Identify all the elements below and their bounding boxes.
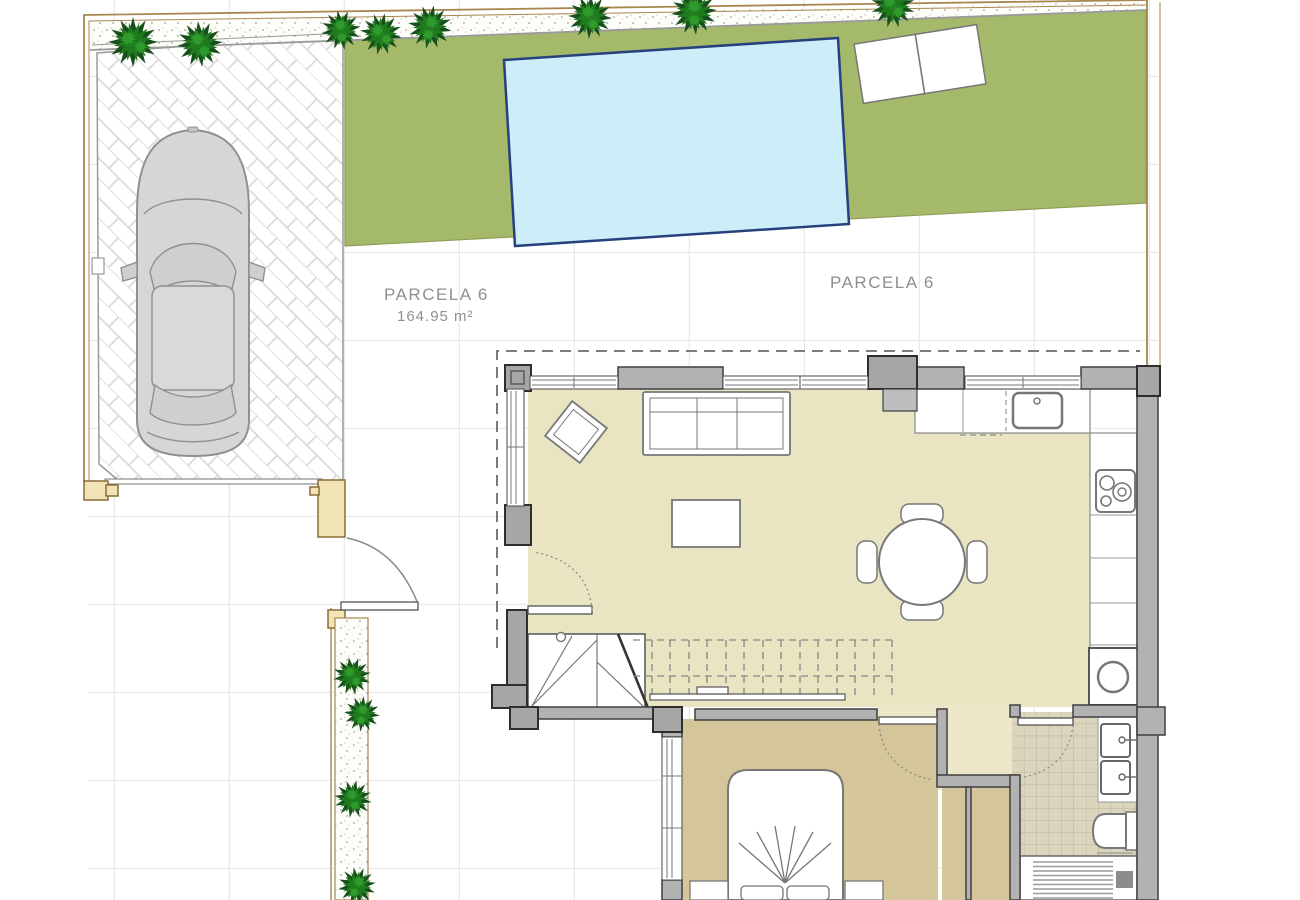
parcel-label-left: PARCELA 6 <box>384 285 489 305</box>
kitchen-counter-top <box>915 389 1090 433</box>
car-antenna <box>188 127 198 132</box>
nightstand <box>845 881 883 900</box>
stair-handrail <box>650 694 845 700</box>
parcel-area-label: 164.95 m² <box>397 308 474 325</box>
bed-cushion <box>741 886 783 900</box>
washing-machine <box>1089 648 1138 705</box>
car <box>121 127 265 456</box>
bed-cushion <box>787 886 829 900</box>
window <box>800 376 868 389</box>
car-roof <box>152 286 234 390</box>
bedroom-closet-floor <box>942 787 1012 900</box>
dining-chair <box>857 541 877 583</box>
dining-chair <box>967 541 987 583</box>
entry-door-leaf <box>528 606 592 614</box>
sunbed <box>915 25 986 94</box>
parcel-label-right: PARCELA 6 <box>830 273 935 293</box>
gate-leaf <box>341 602 418 610</box>
shower-drain <box>1116 871 1133 888</box>
outside-right <box>1158 0 1300 900</box>
gate-post <box>92 258 104 274</box>
window <box>723 376 800 389</box>
pool <box>504 38 849 246</box>
pillar-tab <box>883 389 917 411</box>
sunbed <box>854 34 925 103</box>
plan-canvas <box>0 0 1300 900</box>
bathroom-door-leaf <box>1018 718 1073 725</box>
planter-strip-left <box>335 618 368 900</box>
bedroom-door-leaf <box>879 717 937 724</box>
dining-table <box>879 519 965 605</box>
toilet-tank <box>1126 812 1137 850</box>
stove <box>1096 470 1135 512</box>
toilet-bowl <box>1093 814 1126 848</box>
nightstand <box>690 881 728 900</box>
floor-plan: PARCELA 6 164.95 m² PARCELA 6 <box>0 0 1300 900</box>
newel-post <box>557 633 566 642</box>
coffee-table <box>672 500 740 547</box>
garage-front-kerb <box>105 479 322 484</box>
